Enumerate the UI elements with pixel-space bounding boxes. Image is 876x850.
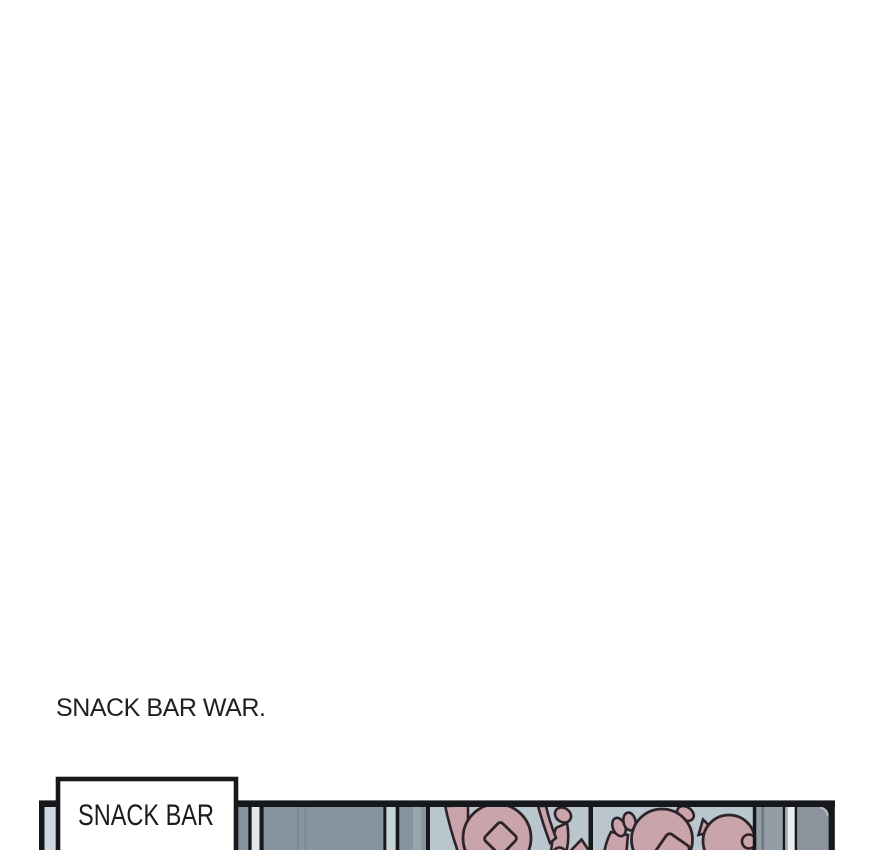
svg-text:SNACK BAR: SNACK BAR — [78, 799, 214, 832]
